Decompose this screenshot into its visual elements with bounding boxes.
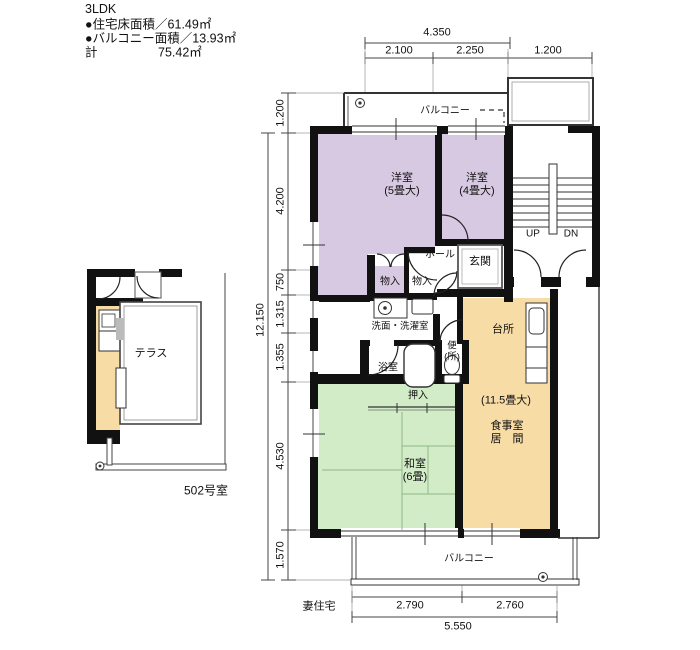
annex-drain-icon (96, 462, 104, 470)
label-terrace: テラス (135, 348, 168, 361)
floorplan-drawing (0, 0, 700, 650)
total-area-value: 75.42㎡ (158, 42, 202, 61)
label-entrance: 玄関 (469, 256, 491, 269)
label-living-size: (11.5畳大) (481, 395, 531, 408)
dim-left-seg7: 1.570 (275, 541, 288, 569)
dim-left-seg3: 750 (275, 273, 288, 291)
label-unit-number: 502号室 (184, 485, 228, 498)
dim-left-seg5: 1.355 (275, 343, 288, 371)
label-oshiire: 押入 (408, 390, 428, 403)
floorplan-page: 3LDK ●住宅床面積／61.49㎡ ●バルコニー面積／13.93㎡ 計 75.… (0, 0, 700, 650)
label-hall: ホール (425, 249, 455, 262)
dim-left-seg6: 4.530 (275, 442, 288, 470)
label-stairs-up: UP (526, 228, 540, 241)
terrace-outline (116, 302, 201, 424)
kitchen-counter (526, 303, 547, 383)
dim-bottom-seg1: 2.790 (396, 600, 424, 613)
label-stairs-down: DN (564, 228, 578, 241)
drain-icon-top (356, 99, 365, 108)
label-balcony-top: バルコニー (420, 105, 470, 118)
label-washroom: 洗面・洗濯室 (371, 322, 428, 333)
dim-bottom-total: 5.550 (444, 621, 472, 634)
dim-top-seg2: 2.250 (456, 45, 484, 58)
label-washitsu: 和室 (6畳) (403, 458, 427, 484)
label-closet-right: 物入 (412, 276, 432, 289)
dim-top-seg3: 1.200 (534, 45, 562, 58)
vanity-icon (412, 299, 433, 314)
dim-top-total: 4.350 (423, 27, 451, 40)
label-toilet: 便 (所) (444, 342, 460, 363)
label-bath: 浴室 (378, 362, 398, 375)
bathtub-icon (404, 344, 435, 387)
total-area-label: 計 (85, 42, 98, 61)
label-living: 食事室 居 間 (491, 420, 524, 446)
label-building-side: 妻住宅 (303, 601, 336, 614)
stair-landing (508, 78, 593, 125)
stairs (513, 164, 592, 234)
label-closet-left: 物入 (380, 276, 400, 289)
label-bedroom1: 洋室 (5畳大) (384, 172, 419, 198)
label-kitchen: 台所 (492, 324, 514, 337)
dim-bottom-seg2: 2.760 (496, 600, 524, 613)
washing-machine-icon (374, 298, 407, 318)
neighbor-outline (558, 287, 599, 538)
dim-left-seg1: 1.200 (275, 99, 288, 127)
dim-left-seg4: 1.315 (275, 300, 288, 328)
dim-left-seg2: 4.200 (275, 187, 288, 215)
label-balcony-bottom: バルコニー (444, 553, 494, 566)
label-bedroom2: 洋室 (4畳大) (459, 172, 494, 198)
drain-icon-bottom (539, 573, 548, 582)
dim-left-total: 12.150 (255, 303, 268, 337)
dim-top-seg1: 2.100 (385, 45, 413, 58)
